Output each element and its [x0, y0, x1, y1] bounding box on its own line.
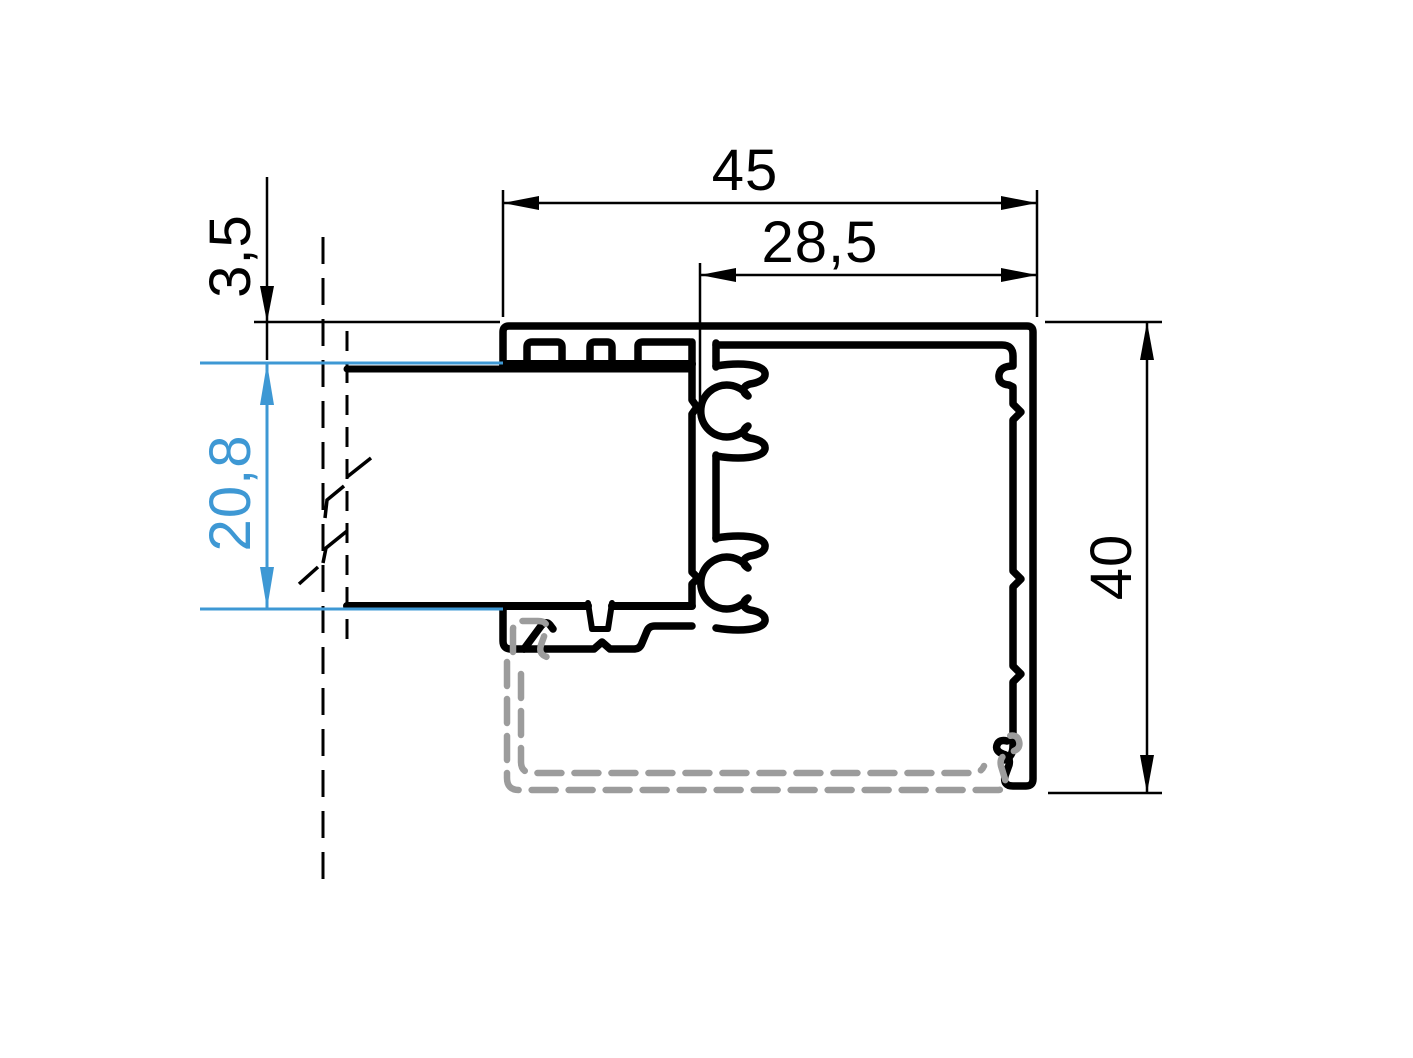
- clip-top: [701, 364, 765, 458]
- dimension-arrowhead: [1140, 322, 1154, 360]
- dimension-top-offset: [254, 177, 500, 360]
- dimension-arrowhead: [260, 567, 274, 609]
- dimension-arrowhead: [260, 363, 274, 405]
- central-wall-left: [692, 342, 698, 604]
- profile-outer-shell: [503, 326, 1033, 786]
- dimension-label-glass-pocket: 20,8: [198, 435, 263, 552]
- glass-pane-centerlines: [299, 237, 371, 880]
- clip-bottom: [701, 536, 765, 630]
- dimension-label-total-height: 40: [1079, 534, 1144, 601]
- glazing-gasket-grooves: [527, 342, 690, 362]
- frame-profile-outline: [347, 326, 1033, 786]
- hardware-groove-clips: [701, 364, 765, 630]
- glass-break-symbol: [299, 458, 371, 584]
- dimension-arrowhead: [1001, 196, 1037, 210]
- dimension-arrowhead: [1140, 755, 1154, 793]
- bead-inner-outline: [521, 674, 984, 773]
- dimension-label-inner-width: 28,5: [762, 210, 879, 275]
- dimension-arrowhead: [700, 268, 736, 282]
- dimension-arrowhead: [1001, 268, 1037, 282]
- dimension-label-top-offset: 3,5: [198, 214, 263, 298]
- dimension-label-total-width: 45: [712, 138, 779, 203]
- screw-slot: [588, 603, 612, 629]
- technical-drawing-page: 45 28,5 3,5 20,8 40: [0, 0, 1413, 1058]
- profile-cross-section-drawing: 45 28,5 3,5 20,8 40: [0, 0, 1413, 1058]
- dimension-arrowhead: [503, 196, 539, 210]
